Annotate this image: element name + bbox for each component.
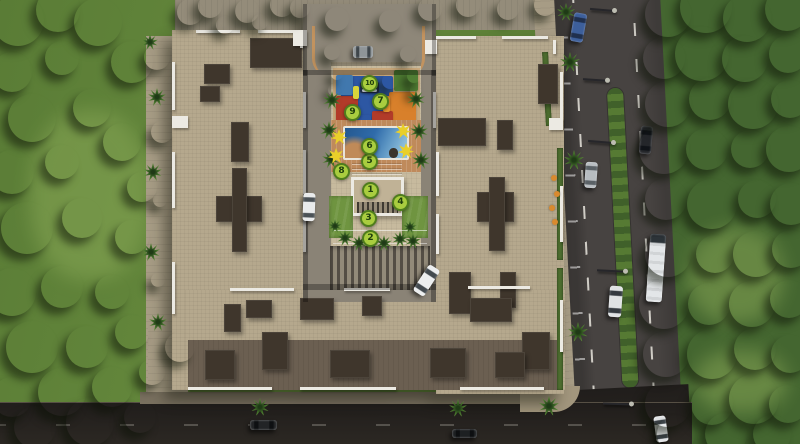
amenity-marker-1: 1 [362, 182, 379, 199]
amenity-marker-9: 9 [344, 104, 361, 121]
amenity-markers: 12345678910 [0, 0, 800, 444]
amenity-marker-6: 6 [361, 138, 378, 155]
amenity-marker-5: 5 [361, 153, 378, 170]
amenity-marker-4: 4 [392, 194, 409, 211]
amenity-marker-8: 8 [333, 163, 350, 180]
amenity-marker-7: 7 [372, 93, 389, 110]
amenity-marker-2: 2 [362, 230, 379, 247]
amenity-marker-3: 3 [360, 210, 377, 227]
site-plan-render: 12345678910 [0, 0, 800, 444]
amenity-marker-10: 10 [361, 75, 378, 92]
